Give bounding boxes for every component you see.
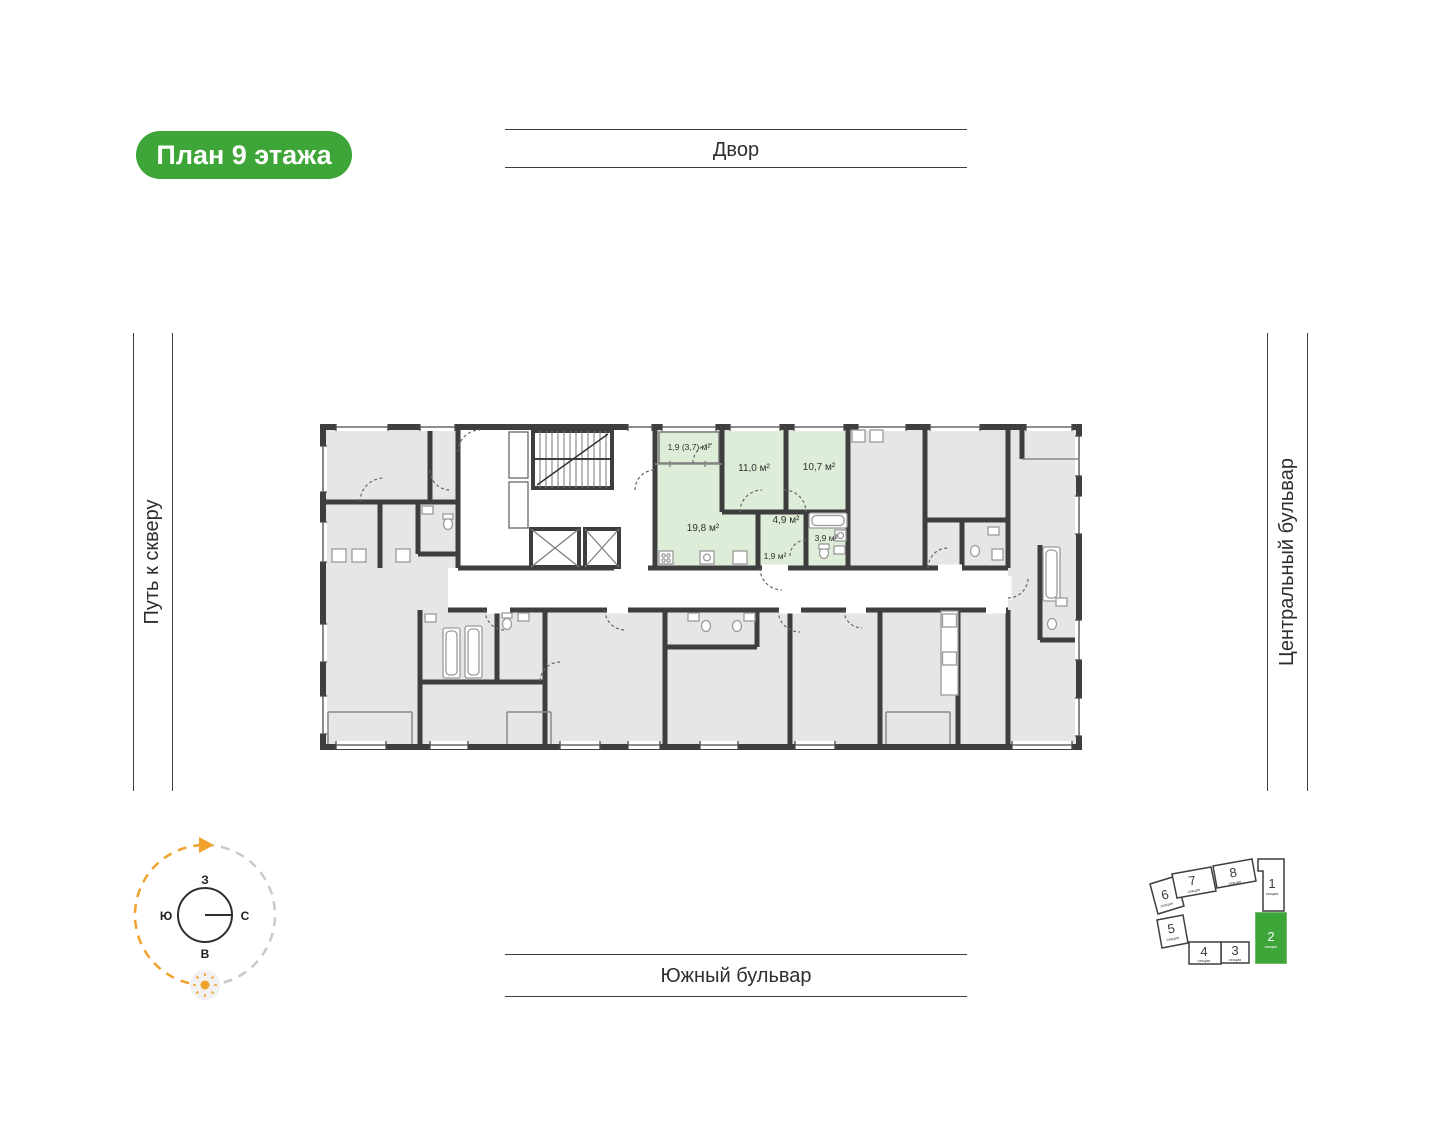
street-right-label: Центральный бульвар	[1267, 332, 1307, 792]
sink	[834, 546, 845, 554]
svg-text:2: 2	[1267, 929, 1274, 944]
elevators	[531, 529, 619, 567]
minimap-section-1[interactable]: 1 секция	[1258, 859, 1284, 911]
street-left-line-2	[172, 333, 173, 791]
area-bedroom-2: 10,7 м²	[803, 462, 836, 473]
area-bedroom-1: 11,0 м²	[738, 463, 770, 474]
svg-text:4: 4	[1200, 944, 1207, 959]
area-balcony: 1,9 (3,7) м²	[668, 442, 711, 452]
building-minimap: 1 секция 2 секция 3 секция 4 секция 5	[1140, 848, 1305, 978]
svg-text:секция: секция	[1229, 957, 1242, 962]
area-living: 19,8 м²	[687, 523, 720, 534]
minimap-section-7[interactable]: 7 секция	[1172, 867, 1216, 898]
area-bathroom: 3,9 м²	[815, 533, 838, 543]
svg-text:3: 3	[1231, 943, 1238, 958]
floor-plan: 1,9 (3,7) м² 11,0 м² 10,7 м² 19,8 м² 4,9…	[320, 424, 1082, 750]
minimap-section-4[interactable]: 4 секция	[1189, 942, 1221, 964]
svg-text:секция: секция	[1265, 944, 1278, 949]
svg-text:секция: секция	[1198, 958, 1211, 963]
street-left-label: Путь к скверу	[132, 332, 172, 792]
area-hallway: 4,9 м²	[773, 515, 801, 526]
common-corridor	[448, 568, 1008, 610]
street-top-line-2	[505, 167, 967, 168]
street-bottom-label: Южный бульвар	[505, 958, 967, 994]
svg-text:секция: секция	[1266, 891, 1279, 896]
svg-text:секция: секция	[1228, 879, 1241, 886]
area-corridor: 1,9 м²	[764, 551, 787, 561]
compass-east: В	[201, 947, 210, 961]
stove	[659, 551, 673, 564]
compass-north: С	[241, 909, 250, 923]
floor-badge-label: План 9 этажа	[156, 140, 331, 171]
street-bottom-line-1	[505, 954, 967, 955]
minimap-section-8[interactable]: 8 секция	[1213, 859, 1256, 888]
minimap-section-2-active[interactable]: 2 секция	[1256, 913, 1286, 963]
page: План 9 этажа Двор Южный бульвар Путь к с…	[0, 0, 1440, 1130]
floor-badge: План 9 этажа	[136, 131, 352, 179]
street-right-line-2	[1307, 333, 1308, 791]
street-bottom-line-2	[505, 996, 967, 997]
svg-text:1: 1	[1268, 876, 1275, 891]
compass-west: З	[201, 873, 209, 887]
minimap-section-3[interactable]: 3 секция	[1221, 942, 1249, 963]
street-top-label: Двор	[505, 133, 967, 167]
compass-arrow-icon	[199, 837, 214, 853]
compass-south: Ю	[160, 909, 172, 923]
street-top-line-1	[505, 129, 967, 130]
minimap-section-5[interactable]: 5 секция	[1157, 915, 1188, 948]
compass: З Ю С В	[120, 830, 295, 1005]
